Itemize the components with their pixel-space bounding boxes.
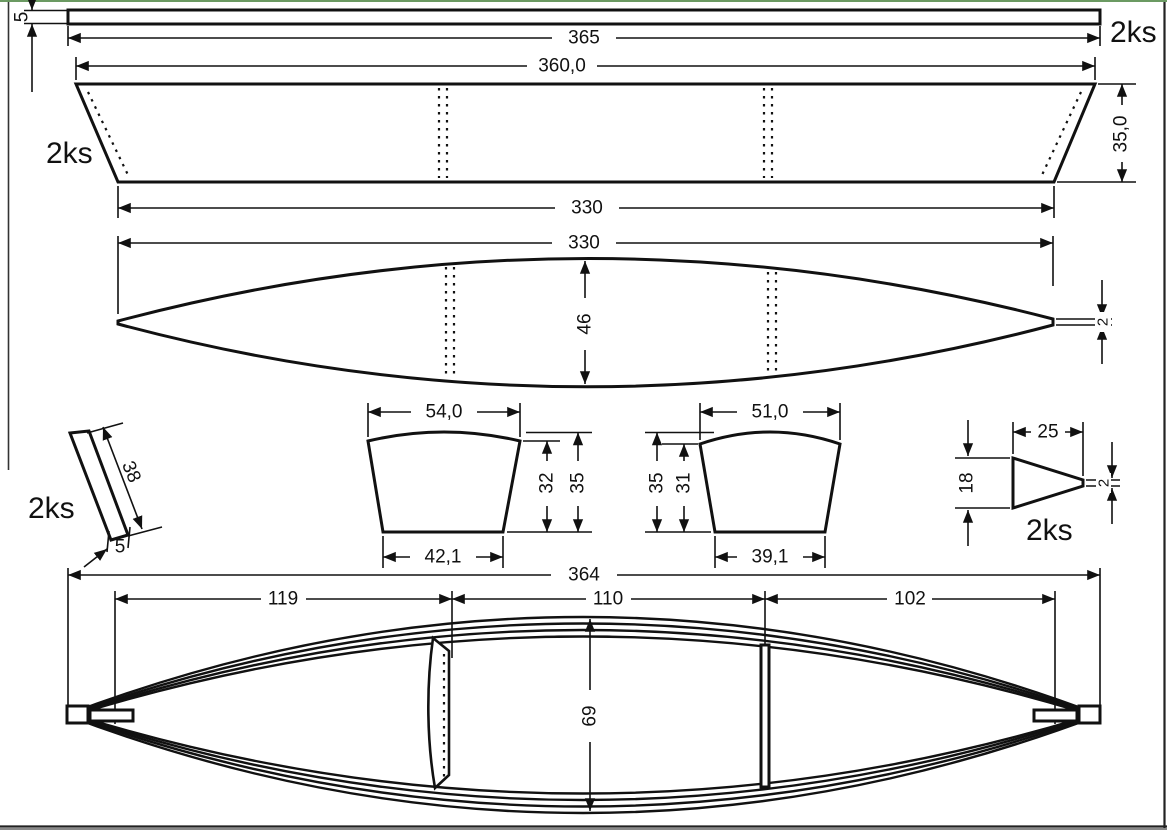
- drawing-sheet: 5 365 2ks 360,0 2ks: [0, 0, 1167, 830]
- bottom-panel-part: 330 46 2: [118, 232, 1112, 387]
- side-panel-height-value: 35,0: [1111, 116, 1132, 153]
- stern-frame-part: 51,0 39,1 35 31: [645, 401, 840, 568]
- bottom-panel-width-value: 46: [575, 313, 596, 334]
- stem-wedge-tip-value: 2: [1096, 479, 1113, 487]
- stem-strip-outline: [70, 431, 128, 540]
- stern-stem-block: [1079, 706, 1100, 723]
- stem-wedge-height-dimension: 18: [955, 420, 1010, 546]
- bow-stem-block: [67, 706, 88, 723]
- rail-thickness-dimension: 5: [12, 0, 69, 92]
- hull-beam-dimension: 69: [577, 619, 603, 811]
- hull-overall-length-value: 364: [568, 565, 600, 586]
- rail-quantity-label: 2ks: [1110, 16, 1157, 49]
- stern-frame-bottom-dimension: 39,1: [715, 536, 825, 568]
- hull-assembly: 364 119 110 102: [66, 564, 1100, 813]
- bow-frame-outline: [368, 432, 520, 532]
- stem-strip-length-value: 38: [117, 458, 145, 486]
- canoe-plan-drawing: 5 365 2ks 360,0 2ks: [0, 0, 1167, 830]
- stem-wedge-part: 25 18 2 2ks: [955, 420, 1120, 547]
- side-panel-bottom-value: 330: [571, 198, 603, 219]
- rail-outline: [68, 10, 1100, 24]
- side-panel-top-dimension: 360,0: [76, 55, 1095, 80]
- side-panel-bottom-dimension: 330: [118, 186, 1054, 219]
- side-panel-quantity-label: 2ks: [46, 137, 93, 170]
- stem-wedge-width-value: 25: [1037, 422, 1058, 443]
- bow-frame-side-height-value: 32: [537, 472, 558, 493]
- stern-frame-total-height-value: 35: [647, 472, 668, 493]
- bow-frame-top-value: 54,0: [426, 402, 463, 423]
- stem-strip-quantity-label: 2ks: [28, 492, 75, 525]
- side-panel-part: 360,0 2ks 35,0 330: [46, 55, 1136, 219]
- bottom-panel-tip-value: 2: [1095, 318, 1112, 326]
- rail-thickness-value: 5: [12, 12, 33, 23]
- stem-wedge-height-value: 18: [957, 472, 978, 493]
- stem-wedge-tip-dimension: 2: [1086, 442, 1120, 524]
- stern-frame-top-value: 51,0: [752, 402, 789, 423]
- hull-bow-frame: [428, 638, 449, 788]
- top-edge-line: [0, 0, 1167, 2]
- rail-length-dimension: 365: [68, 26, 1100, 49]
- stem-strip-width-value: 5: [115, 537, 126, 558]
- hull-mid-section-value: 110: [593, 589, 623, 610]
- bottom-panel-tip-dimension: 2: [1056, 280, 1112, 364]
- stem-strip-part: 38 5 2ks: [28, 423, 162, 567]
- stern-frame-bottom-value: 39,1: [752, 547, 789, 568]
- hull-beam-value: 69: [580, 705, 601, 726]
- rail-part: 5 365 2ks: [12, 0, 1157, 92]
- hull-overall-length-dimension: 364: [68, 564, 1100, 706]
- side-panel-outline: [76, 84, 1095, 182]
- hull-stern-section-value: 102: [894, 589, 926, 610]
- stem-wedge-quantity-label: 2ks: [1026, 514, 1073, 547]
- stern-inner-stem: [1034, 710, 1077, 721]
- rail-length-value: 365: [568, 28, 600, 49]
- stern-frame-outline: [700, 432, 840, 532]
- bottom-panel-length-value: 330: [568, 233, 600, 254]
- bow-frame-total-height-value: 35: [568, 472, 589, 493]
- stern-frame-side-height-value: 31: [674, 472, 695, 493]
- side-panel-top-value: 360,0: [538, 56, 586, 77]
- stem-wedge-outline: [1013, 458, 1083, 508]
- bow-frame-bottom-value: 42,1: [425, 547, 462, 568]
- hull-bow-section-value: 119: [268, 589, 298, 610]
- hull-stern-thwart: [761, 645, 769, 787]
- bow-frame-bottom-dimension: 42,1: [383, 536, 503, 568]
- bow-inner-stem: [90, 710, 133, 721]
- bow-frame-part: 54,0 42,1 32 35: [368, 401, 592, 568]
